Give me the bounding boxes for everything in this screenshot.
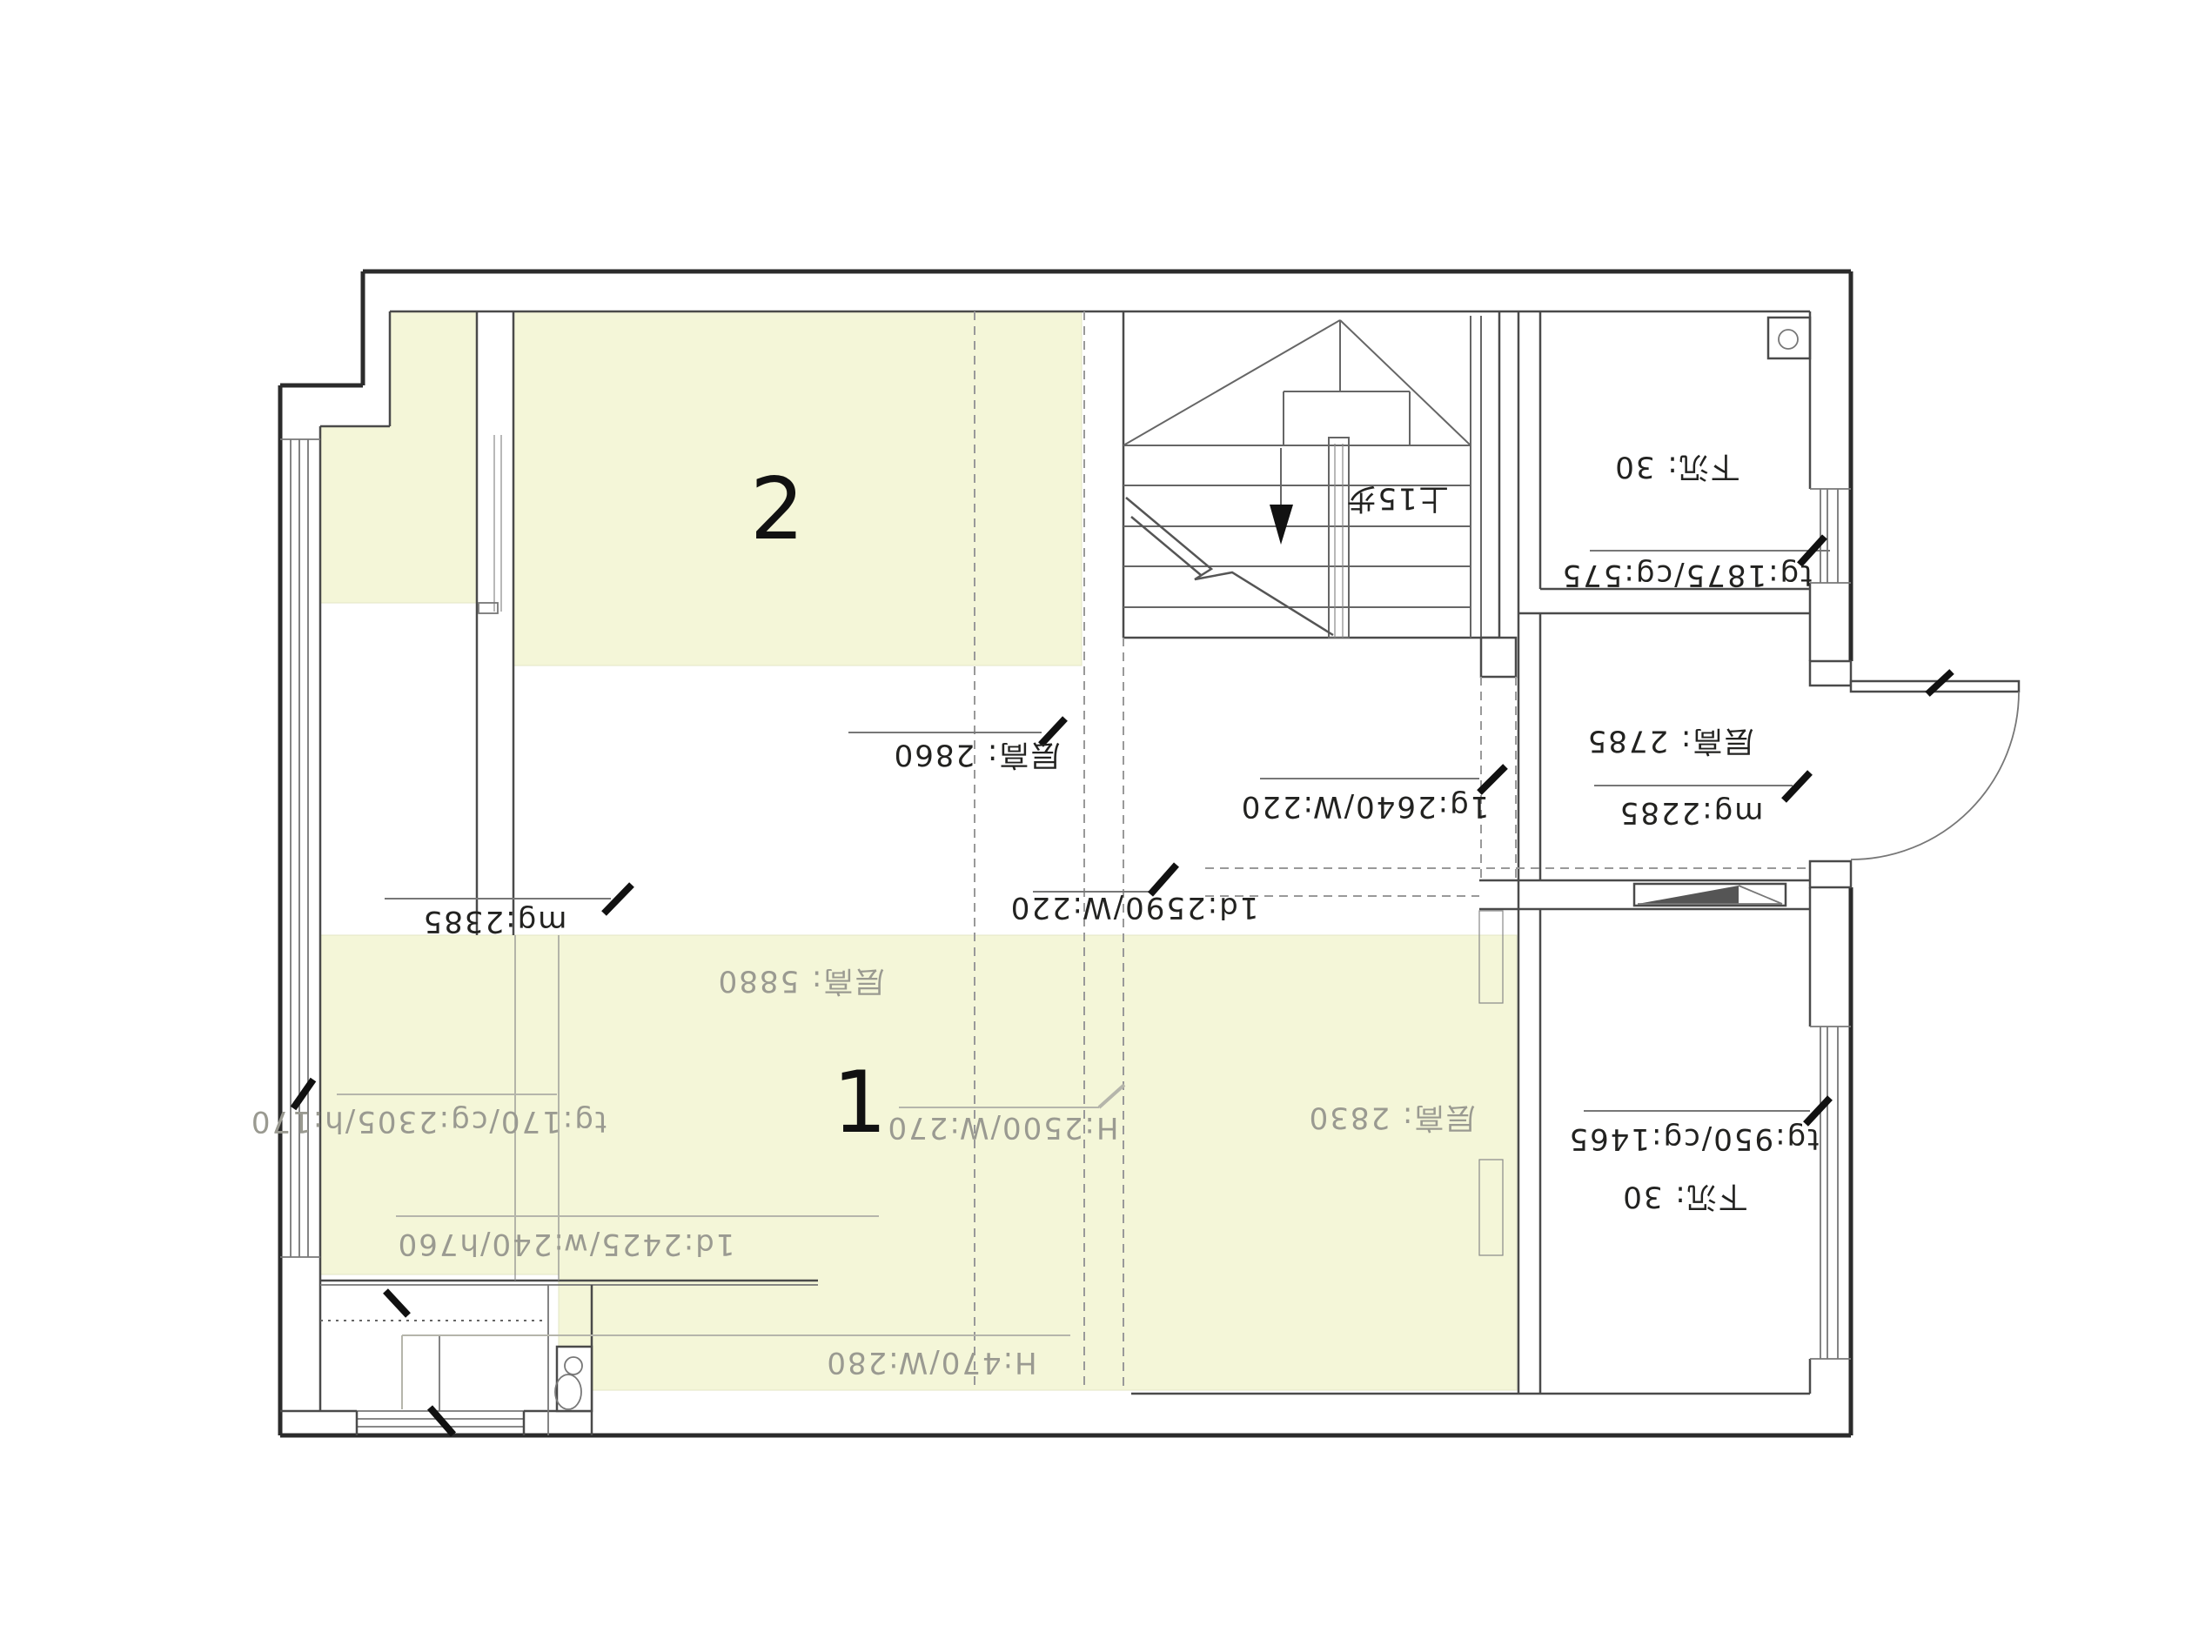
highlight-region-2 (320, 311, 1082, 665)
sunken-30-top-label: 下沉: 30 (1613, 449, 1740, 492)
tg-1875-label: tg:1875/cg:575 (1561, 558, 1813, 592)
mg-2385-label: mg:2385 (422, 904, 567, 939)
floorplan-linework (0, 0, 2212, 1652)
window-h2500-label: H:2500/W:270 (887, 1110, 1119, 1145)
beam-1d-2590-label: 1d:2590/W:220 (1009, 890, 1259, 925)
sink-icon (555, 1347, 592, 1411)
floor-plan-page: 2 1 上15步 层高: 2860 1g:2640/W:220 1d:2590/… (0, 0, 2212, 1652)
ceiling-5880-label: 层高: 5880 (717, 963, 885, 1006)
highlight-region-1 (320, 935, 1517, 1390)
window-h470-label: H:470/W:280 (825, 1345, 1036, 1380)
door-swing-arc (1851, 692, 2019, 859)
stairs-up-label: 上15步 (1344, 480, 1448, 523)
mg-2285-label: mg:2285 (1619, 795, 1764, 830)
sunken-30-bottom-label: 下沉: 30 (1621, 1179, 1748, 1221)
right-wall-window-bottom (1810, 1027, 1851, 1359)
beam-1d-2425-label: 1d:2425/w:240/h760 (397, 1227, 735, 1261)
entry-door (1810, 661, 2019, 887)
room-2-number: 2 (750, 460, 804, 559)
ceiling-2860-label: 层高: 2860 (893, 737, 1061, 779)
tg-950-label: tg:950/cg:1465 (1568, 1121, 1820, 1156)
staircase (1123, 316, 1516, 677)
right-wall-window-top (1810, 489, 1851, 583)
duct-symbol (1768, 318, 1810, 358)
tg-170-label: tg:170/cg:2305/h:170 (250, 1104, 607, 1139)
threshold-hatch (1634, 884, 1786, 906)
stair-direction-arrow-icon (1270, 505, 1293, 545)
ceiling-2785-label: 层高: 2785 (1586, 723, 1754, 766)
room-1-number: 1 (833, 1053, 887, 1153)
beam-1g-2640-label: 1g:2640/W:220 (1240, 789, 1490, 824)
ceiling-2830-label: 层高: 2830 (1308, 1100, 1476, 1142)
